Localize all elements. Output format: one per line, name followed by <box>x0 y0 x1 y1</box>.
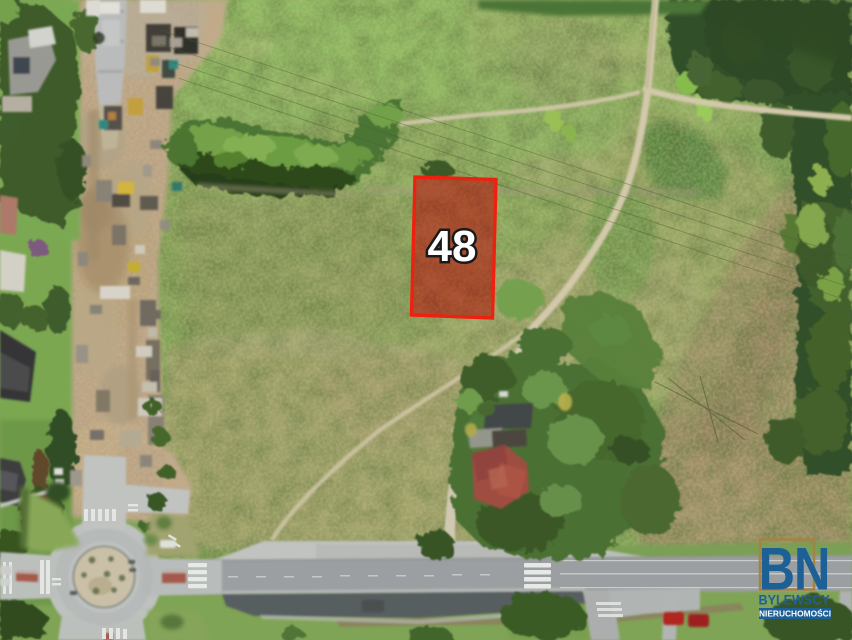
svg-text:BYLEWSCY: BYLEWSCY <box>759 592 830 608</box>
svg-text:NIERUCHOMOŚCI: NIERUCHOMOŚCI <box>759 608 831 619</box>
svg-text:48: 48 <box>428 222 477 271</box>
